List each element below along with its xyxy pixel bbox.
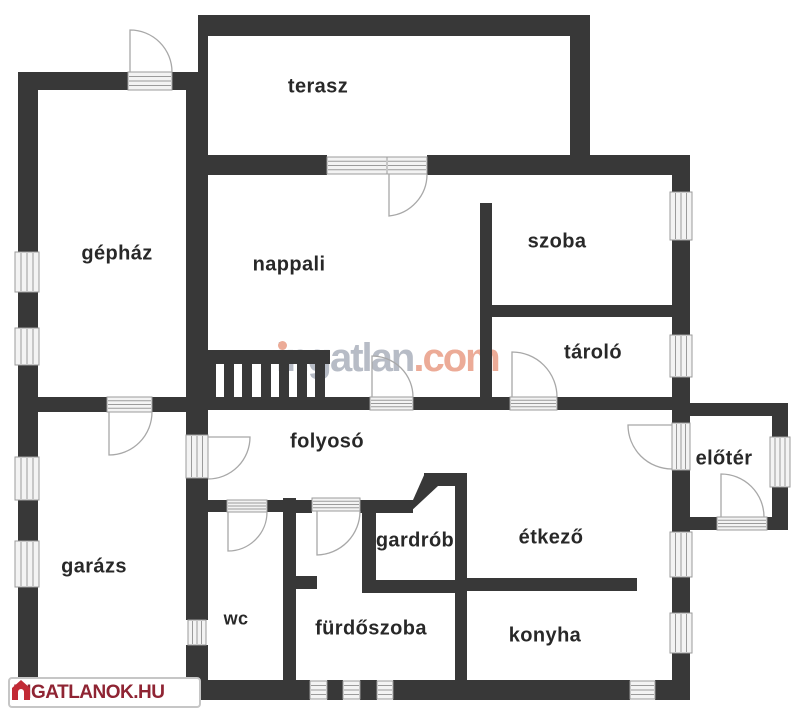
- stair-tread: [279, 364, 289, 397]
- window: [15, 252, 39, 292]
- window: [327, 157, 387, 174]
- room-label-etkezo: étkező: [519, 527, 584, 550]
- window: [672, 423, 690, 470]
- window: [15, 541, 39, 587]
- room-label-nappali: nappali: [253, 254, 326, 277]
- window: [670, 613, 692, 653]
- door-swing: [130, 30, 172, 72]
- window: [128, 72, 172, 90]
- door-swing: [628, 425, 672, 469]
- room-label-gardrob: gardrób: [376, 530, 454, 553]
- door-swing: [389, 174, 427, 216]
- window: [670, 532, 692, 577]
- floor-plan: ingatlan.com: [0, 0, 800, 716]
- window: [107, 397, 152, 412]
- room-label-garazs: garázs: [61, 556, 127, 579]
- window: [670, 192, 692, 240]
- door-swing: [228, 512, 267, 551]
- window: [377, 681, 393, 699]
- room-label-folyoso: folyosó: [290, 431, 364, 454]
- window: [15, 328, 39, 365]
- door-swing: [208, 437, 250, 479]
- room-label-eloter: előtér: [696, 448, 753, 471]
- stair-tread: [242, 364, 252, 397]
- stair-tread: [224, 364, 234, 397]
- window: [188, 620, 206, 645]
- stairs: [200, 350, 330, 397]
- window: [510, 397, 557, 410]
- window: [770, 437, 790, 487]
- door-swing: [512, 352, 557, 397]
- room-label-konyha: konyha: [509, 625, 581, 648]
- room-label-szoba: szoba: [528, 231, 587, 254]
- window: [15, 457, 39, 500]
- window: [310, 681, 327, 699]
- house-icon: [10, 679, 32, 701]
- window: [312, 498, 360, 511]
- room-label-gephaz: gépház: [81, 243, 152, 266]
- stair-tread: [261, 364, 271, 397]
- stair-tread: [206, 364, 216, 397]
- window: [343, 681, 360, 699]
- room-label-tarolo: tároló: [564, 342, 622, 365]
- window: [186, 435, 208, 478]
- window: [370, 397, 413, 410]
- stair-tread: [315, 364, 325, 397]
- door-swing: [317, 511, 360, 555]
- room-label-furdoszoba: fürdőszoba: [315, 618, 427, 641]
- window: [227, 500, 267, 512]
- window: [630, 681, 655, 699]
- ingatlanok-logo-badge: INGATLANOK.HU: [8, 677, 201, 708]
- door-swing: [372, 356, 413, 397]
- door-swing: [109, 412, 152, 455]
- door-swing: [721, 474, 764, 517]
- logo-text: INGATLANOK.HU: [13, 682, 164, 704]
- floor-plan-drawing: [0, 0, 800, 716]
- room-label-wc: wc: [224, 609, 249, 630]
- room-label-terasz: terasz: [288, 76, 348, 99]
- stair-tread: [297, 364, 307, 397]
- window: [717, 517, 767, 530]
- window: [387, 157, 427, 174]
- window: [670, 335, 692, 377]
